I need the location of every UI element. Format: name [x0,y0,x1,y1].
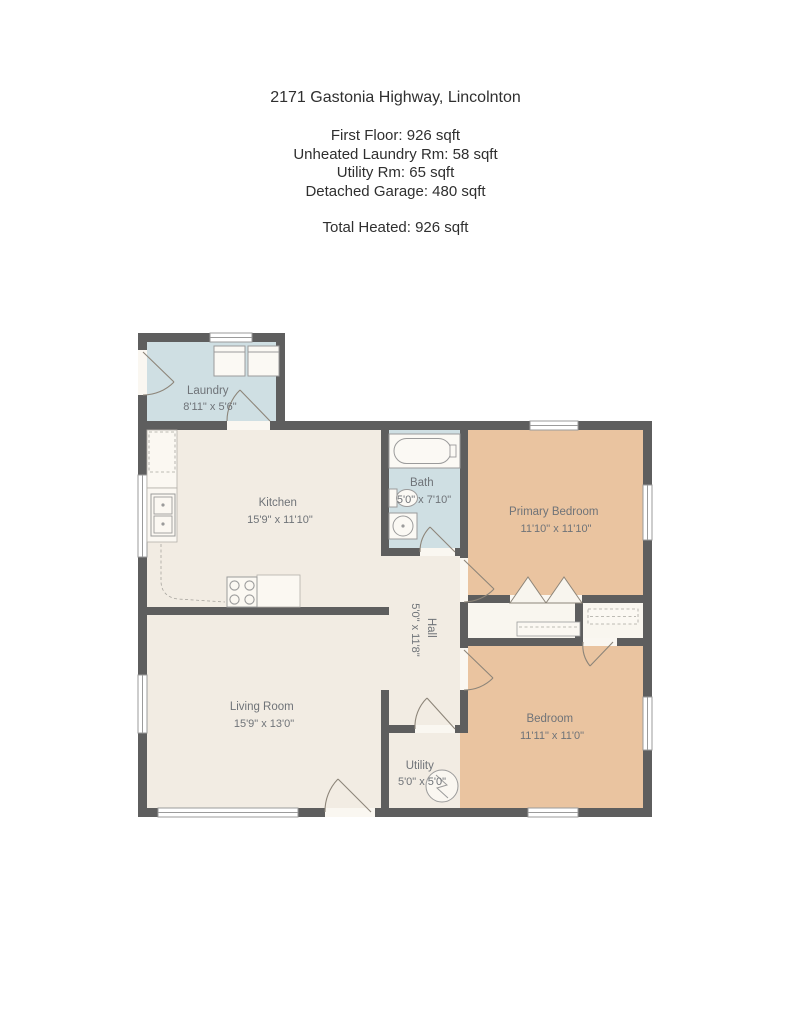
bath-sink-icon [389,513,417,539]
stat-garage: Detached Garage: 480 sqft [0,183,791,202]
total-heated: Total Heated: 926 sqft [0,219,791,236]
dryer-icon [248,346,279,376]
stat-utility: Utility Rm: 65 sqft [0,164,791,183]
bathtub-icon [389,434,460,468]
stat-first-floor: First Floor: 926 sqft [0,127,791,146]
stat-laundry: Unheated Laundry Rm: 58 sqft [0,146,791,165]
address-title: 2171 Gastonia Highway, Lincolnton [0,89,791,107]
floorplan-page: 2171 Gastonia Highway, Lincolnton First … [0,0,791,1024]
bedroom-floor [460,638,652,817]
stove-icon [227,575,300,607]
washer-icon [214,346,245,376]
kitchen-sink-icon [151,494,175,536]
floor-plan: Laundry 8'11" x 5'6" Kitchen 15'9" x 11'… [130,325,660,825]
area-stats: First Floor: 926 sqft Unheated Laundry R… [0,127,791,201]
